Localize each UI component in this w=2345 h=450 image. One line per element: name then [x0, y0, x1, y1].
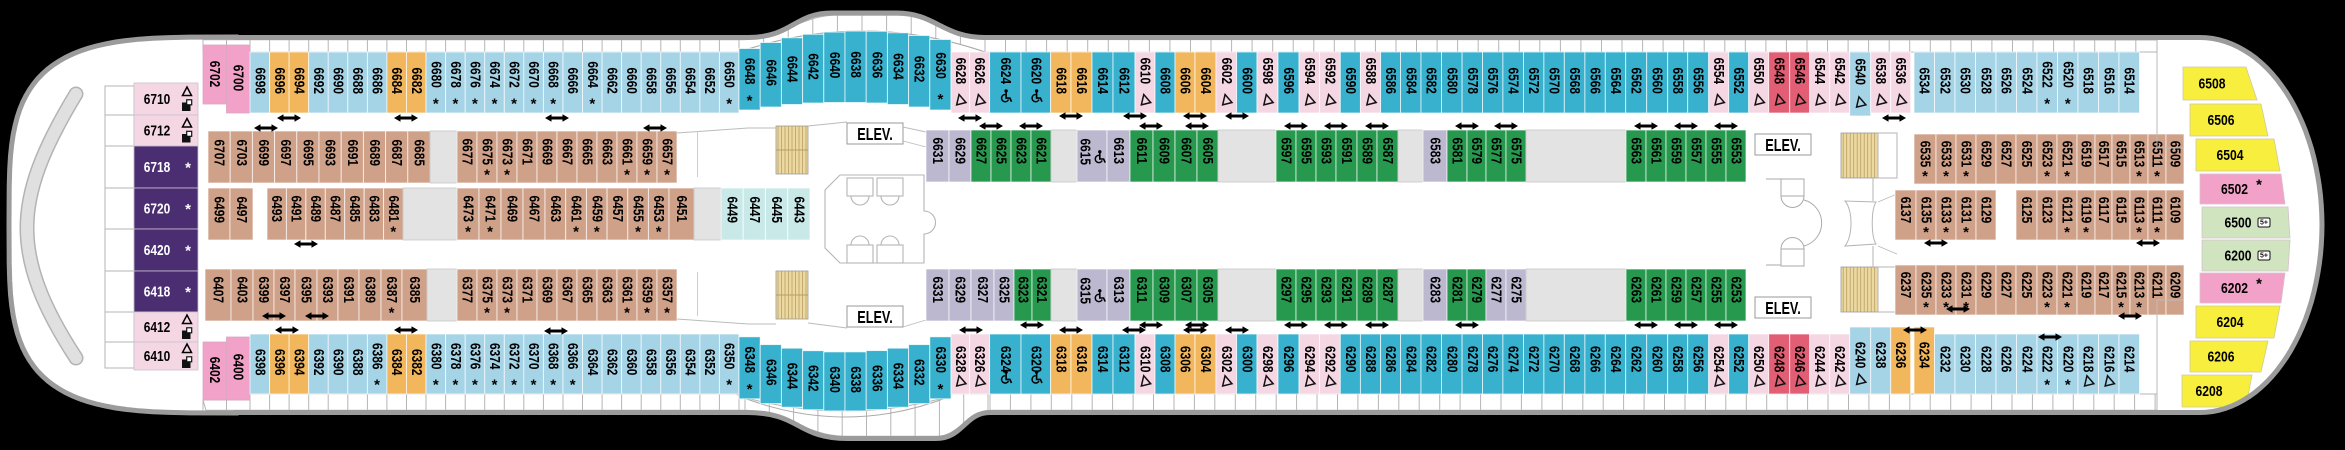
svg-text:6219: 6219 [2078, 272, 2095, 299]
svg-text:6578: 6578 [1464, 67, 1481, 94]
svg-text:*: * [492, 377, 498, 394]
svg-text:6654: 6654 [682, 67, 699, 94]
svg-text:6673: 6673 [499, 139, 516, 166]
svg-text:*: * [2044, 95, 2050, 112]
svg-text:6670: 6670 [525, 61, 542, 88]
svg-text:6364: 6364 [584, 349, 601, 376]
svg-text:6587: 6587 [1379, 138, 1396, 165]
svg-text:6561: 6561 [1648, 138, 1665, 165]
svg-text:6382: 6382 [408, 349, 425, 376]
svg-text:6306: 6306 [1177, 346, 1194, 373]
svg-text:6560: 6560 [1649, 67, 1666, 94]
svg-text:6595: 6595 [1298, 138, 1315, 165]
svg-text:6387: 6387 [383, 277, 400, 304]
svg-text:6113: 6113 [2131, 197, 2148, 224]
svg-text:6613: 6613 [1110, 138, 1127, 165]
svg-text:*: * [433, 377, 439, 394]
svg-text:6707: 6707 [211, 140, 228, 167]
svg-text:*: * [664, 167, 670, 184]
svg-text:6627: 6627 [973, 138, 990, 165]
svg-text:6579: 6579 [1468, 138, 1485, 165]
svg-text:6625: 6625 [993, 138, 1010, 165]
svg-text:6563: 6563 [1628, 138, 1645, 165]
svg-text:6540: 6540 [1852, 59, 1869, 86]
svg-text:6246: 6246 [1791, 346, 1808, 373]
svg-text:6214: 6214 [2121, 346, 2138, 373]
svg-text:6238: 6238 [1872, 342, 1889, 369]
svg-text:6354: 6354 [682, 349, 699, 376]
svg-text:6665: 6665 [579, 139, 596, 166]
svg-text:6284: 6284 [1402, 346, 1419, 373]
svg-text:6504: 6504 [2217, 147, 2244, 164]
svg-text:*: * [374, 377, 380, 394]
svg-text:6282: 6282 [1423, 346, 1440, 373]
svg-text:6631: 6631 [929, 138, 946, 165]
svg-text:*: * [492, 95, 498, 112]
svg-text:6307: 6307 [1178, 277, 1195, 304]
svg-text:6642: 6642 [805, 53, 822, 80]
svg-text:6527: 6527 [1998, 141, 2015, 168]
svg-text:6240: 6240 [1852, 342, 1869, 369]
svg-text:6552: 6552 [1730, 67, 1747, 94]
svg-text:*: * [624, 305, 630, 322]
svg-text:6420: 6420 [144, 242, 171, 259]
svg-text:6352: 6352 [701, 349, 718, 376]
svg-text:ELEV.: ELEV. [1765, 298, 1801, 318]
svg-text:6119: 6119 [2078, 197, 2095, 224]
svg-text:6443: 6443 [790, 197, 807, 224]
svg-text:6638: 6638 [847, 51, 864, 78]
svg-text:*: * [465, 224, 471, 241]
svg-text:*: * [2154, 168, 2160, 185]
svg-text:6658: 6658 [643, 67, 660, 94]
svg-text:6396: 6396 [271, 349, 288, 376]
svg-text:6514: 6514 [2121, 67, 2138, 94]
svg-text:6671: 6671 [519, 139, 536, 166]
svg-text:6523: 6523 [2039, 141, 2056, 168]
svg-text:*: * [726, 95, 732, 112]
svg-text:6558: 6558 [1669, 67, 1686, 94]
svg-text:6636: 6636 [868, 52, 885, 79]
svg-text:6520: 6520 [2059, 61, 2076, 88]
svg-text:6380: 6380 [427, 343, 444, 370]
svg-text:6235: 6235 [1918, 272, 1935, 299]
svg-text:6297: 6297 [1278, 277, 1295, 304]
svg-text:6718: 6718 [144, 159, 171, 176]
svg-text:6315: 6315 [1077, 278, 1094, 305]
svg-text:*: * [635, 224, 641, 241]
svg-text:6694: 6694 [290, 67, 307, 94]
svg-text:6611: 6611 [1133, 138, 1150, 165]
svg-text:6597: 6597 [1278, 138, 1295, 165]
svg-text:6253: 6253 [1728, 277, 1745, 304]
svg-text:6630: 6630 [932, 52, 949, 79]
svg-text:6710: 6710 [144, 91, 171, 108]
svg-text:*: * [2065, 377, 2071, 394]
svg-text:6615: 6615 [1077, 139, 1094, 166]
svg-text:6604: 6604 [1197, 67, 1214, 94]
svg-text:6680: 6680 [427, 61, 444, 88]
svg-text:6624: 6624 [997, 58, 1014, 85]
svg-text:6590: 6590 [1342, 67, 1359, 94]
svg-text:6712: 6712 [144, 123, 171, 140]
svg-text:6697: 6697 [277, 140, 294, 167]
svg-text:6499: 6499 [211, 197, 228, 224]
svg-text:6609: 6609 [1156, 138, 1173, 165]
svg-text:6675: 6675 [479, 139, 496, 166]
svg-text:*: * [2064, 224, 2070, 241]
svg-text:6508: 6508 [2199, 76, 2226, 93]
svg-text:6700: 6700 [230, 65, 247, 92]
svg-text:6586: 6586 [1382, 67, 1399, 94]
svg-text:*: * [1963, 168, 1969, 185]
svg-text:6358: 6358 [643, 349, 660, 376]
svg-text:6650: 6650 [721, 61, 738, 88]
svg-text:6367: 6367 [559, 277, 576, 304]
svg-text:6530: 6530 [1957, 67, 1974, 94]
svg-text:6664: 6664 [584, 61, 601, 88]
svg-text:6607: 6607 [1178, 138, 1195, 165]
svg-text:6491: 6491 [288, 196, 305, 223]
svg-text:6403: 6403 [234, 277, 251, 304]
svg-text:*: * [1943, 299, 1949, 316]
svg-text:6667: 6667 [559, 139, 576, 166]
svg-text:6652: 6652 [701, 67, 718, 94]
svg-text:*: * [452, 377, 458, 394]
svg-text:6283: 6283 [1427, 277, 1444, 304]
svg-text:*: * [433, 95, 439, 112]
svg-text:6294: 6294 [1301, 346, 1318, 373]
svg-text:6357: 6357 [659, 277, 676, 304]
svg-text:6226: 6226 [1998, 346, 2015, 373]
svg-text:6260: 6260 [1649, 346, 1666, 373]
svg-text:*: * [185, 201, 191, 218]
svg-text:6228: 6228 [1977, 346, 1994, 373]
svg-text:6115: 6115 [2113, 197, 2130, 224]
svg-text:6256: 6256 [1690, 346, 1707, 373]
svg-text:6356: 6356 [662, 349, 679, 376]
svg-text:6691: 6691 [344, 140, 361, 167]
svg-text:6325: 6325 [996, 277, 1013, 304]
svg-text:6695: 6695 [299, 140, 316, 167]
svg-text:6557: 6557 [1688, 138, 1705, 165]
svg-text:6330: 6330 [932, 347, 949, 374]
svg-text:6264: 6264 [1607, 346, 1624, 373]
svg-text:*: * [2044, 299, 2050, 316]
svg-text:6612: 6612 [1116, 67, 1133, 94]
svg-text:6220: 6220 [2059, 346, 2076, 373]
svg-text:6266: 6266 [1587, 346, 1604, 373]
svg-text:6581: 6581 [1449, 138, 1466, 165]
svg-text:6594: 6594 [1301, 58, 1318, 85]
svg-text:6559: 6559 [1668, 138, 1685, 165]
svg-text:6660: 6660 [623, 67, 640, 94]
svg-text:6620: 6620 [1027, 58, 1044, 85]
svg-text:6644: 6644 [784, 56, 801, 83]
svg-text:5+: 5+ [2260, 252, 2268, 259]
svg-text:6232: 6232 [1936, 346, 1953, 373]
svg-text:6447: 6447 [746, 197, 763, 224]
svg-text:6338: 6338 [847, 366, 864, 393]
svg-text:6370: 6370 [525, 343, 542, 370]
svg-text:6572: 6572 [1525, 67, 1542, 94]
svg-text:*: * [1923, 224, 1929, 241]
svg-text:6577: 6577 [1488, 138, 1505, 165]
svg-text:6277: 6277 [1488, 277, 1505, 304]
svg-text:*: * [484, 305, 490, 322]
svg-text:6366: 6366 [564, 343, 581, 370]
svg-text:6257: 6257 [1688, 277, 1705, 304]
svg-text:6445: 6445 [768, 197, 785, 224]
svg-text:6500: 6500 [2225, 215, 2252, 232]
svg-text:*: * [2154, 224, 2160, 241]
svg-text:6583: 6583 [1427, 138, 1444, 165]
svg-text:*: * [472, 95, 478, 112]
svg-text:6593: 6593 [1318, 138, 1335, 165]
svg-text:6323: 6323 [1015, 277, 1032, 304]
svg-text:6606: 6606 [1177, 67, 1194, 94]
svg-text:*: * [2064, 299, 2070, 316]
svg-text:6261: 6261 [1648, 277, 1665, 304]
svg-text:6321: 6321 [1033, 277, 1050, 304]
svg-text:6528: 6528 [1977, 67, 1994, 94]
svg-text:6467: 6467 [526, 196, 543, 223]
svg-text:6233: 6233 [1938, 272, 1955, 299]
svg-text:6272: 6272 [1525, 346, 1542, 373]
svg-text:6117: 6117 [2095, 197, 2112, 224]
svg-text:*: * [2083, 224, 2089, 241]
svg-text:6589: 6589 [1359, 138, 1376, 165]
svg-text:6588: 6588 [1362, 58, 1379, 85]
svg-text:*: * [487, 224, 493, 241]
svg-text:6410: 6410 [144, 348, 171, 365]
svg-text:6532: 6532 [1936, 67, 1953, 94]
svg-text:6372: 6372 [506, 343, 523, 370]
svg-text:6397: 6397 [276, 277, 293, 304]
svg-text:6362: 6362 [603, 349, 620, 376]
svg-text:6483: 6483 [365, 196, 382, 223]
svg-text:6696: 6696 [271, 67, 288, 94]
svg-text:6213: 6213 [2131, 272, 2148, 299]
svg-text:6489: 6489 [307, 196, 324, 223]
svg-text:6209: 6209 [2167, 272, 2184, 299]
svg-text:6400: 6400 [230, 354, 247, 381]
svg-text:6576: 6576 [1484, 67, 1501, 94]
svg-text:6461: 6461 [568, 196, 585, 223]
svg-text:6600: 6600 [1238, 67, 1255, 94]
svg-text:6314: 6314 [1094, 346, 1111, 373]
svg-text:6591: 6591 [1338, 138, 1355, 165]
svg-text:6531: 6531 [1958, 141, 1975, 168]
svg-text:6517: 6517 [2095, 141, 2112, 168]
svg-text:6602: 6602 [1218, 58, 1235, 85]
svg-text:6391: 6391 [340, 277, 357, 304]
svg-text:6678: 6678 [447, 61, 464, 88]
svg-text:6377: 6377 [459, 277, 476, 304]
svg-text:6208: 6208 [2196, 383, 2223, 400]
svg-text:6250: 6250 [1750, 346, 1767, 373]
svg-text:6623: 6623 [1013, 138, 1030, 165]
svg-text:6502: 6502 [2221, 181, 2248, 198]
svg-text:6481: 6481 [385, 196, 402, 223]
svg-text:6274: 6274 [1505, 346, 1522, 373]
svg-text:6418: 6418 [144, 284, 171, 301]
svg-text:6469: 6469 [504, 196, 521, 223]
svg-text:6123: 6123 [2039, 197, 2056, 224]
svg-text:6304: 6304 [1197, 346, 1214, 373]
svg-text:6293: 6293 [1318, 277, 1335, 304]
svg-text:*: * [624, 167, 630, 184]
svg-text:6350: 6350 [721, 343, 738, 370]
svg-text:6263: 6263 [1628, 277, 1645, 304]
svg-text:6536: 6536 [1892, 58, 1909, 85]
svg-text:6463: 6463 [547, 196, 564, 223]
svg-text:6218: 6218 [2080, 346, 2097, 373]
svg-text:6312: 6312 [1116, 346, 1133, 373]
svg-text:6519: 6519 [2078, 141, 2095, 168]
svg-text:6646: 6646 [762, 60, 779, 87]
svg-text:6668: 6668 [545, 61, 562, 88]
svg-text:6659: 6659 [639, 139, 656, 166]
svg-text:*: * [2136, 168, 2142, 185]
svg-text:5+: 5+ [2260, 219, 2268, 226]
svg-text:6254: 6254 [1710, 346, 1727, 373]
svg-text:6262: 6262 [1628, 346, 1645, 373]
svg-text:6666: 6666 [564, 67, 581, 94]
svg-text:*: * [389, 305, 395, 322]
svg-text:6258: 6258 [1669, 346, 1686, 373]
svg-text:6302: 6302 [1218, 346, 1235, 373]
svg-text:6125: 6125 [2018, 197, 2035, 224]
svg-text:6485: 6485 [346, 196, 363, 223]
svg-text:6278: 6278 [1464, 346, 1481, 373]
svg-text:6281: 6281 [1449, 277, 1466, 304]
svg-text:6384: 6384 [388, 349, 405, 376]
svg-text:6542: 6542 [1831, 58, 1848, 85]
svg-text:6699: 6699 [255, 140, 272, 167]
svg-text:*: * [185, 284, 191, 301]
svg-text:6473: 6473 [460, 196, 477, 223]
svg-text:6509: 6509 [2167, 141, 2184, 168]
svg-text:*: * [644, 305, 650, 322]
svg-text:6248: 6248 [1771, 346, 1788, 373]
svg-text:6692: 6692 [310, 67, 327, 94]
svg-text:6244: 6244 [1811, 346, 1828, 373]
svg-text:ELEV.: ELEV. [857, 307, 893, 327]
svg-text:6554: 6554 [1710, 58, 1727, 85]
svg-text:6596: 6596 [1280, 67, 1297, 94]
svg-text:6202: 6202 [2221, 280, 2248, 297]
svg-text:6546: 6546 [1791, 58, 1808, 85]
svg-text:6487: 6487 [327, 196, 344, 223]
svg-text:6133: 6133 [1938, 197, 1955, 224]
svg-text:6369: 6369 [539, 277, 556, 304]
svg-text:6698: 6698 [251, 67, 268, 94]
svg-text:6224: 6224 [2018, 346, 2035, 373]
svg-text:6242: 6242 [1831, 346, 1848, 373]
svg-text:*: * [2256, 177, 2262, 194]
svg-text:6252: 6252 [1730, 346, 1747, 373]
svg-text:*: * [937, 381, 943, 398]
svg-text:6451: 6451 [673, 196, 690, 223]
svg-text:6515: 6515 [2113, 141, 2130, 168]
svg-text:6386: 6386 [369, 343, 386, 370]
svg-text:6459: 6459 [588, 196, 605, 223]
svg-text:6223: 6223 [2039, 272, 2056, 299]
svg-text:6555: 6555 [1708, 138, 1725, 165]
svg-text:6669: 6669 [539, 139, 556, 166]
svg-text:6574: 6574 [1505, 67, 1522, 94]
svg-text:6216: 6216 [2100, 346, 2117, 373]
svg-text:*: * [550, 377, 556, 394]
svg-text:*: * [570, 377, 576, 394]
svg-text:*: * [2256, 276, 2262, 293]
svg-text:6533: 6533 [1938, 141, 1955, 168]
svg-text:6395: 6395 [298, 277, 315, 304]
svg-text:6344: 6344 [784, 363, 801, 390]
svg-text:6402: 6402 [206, 357, 223, 384]
svg-text:6626: 6626 [971, 58, 988, 85]
svg-text:6222: 6222 [2039, 346, 2056, 373]
svg-text:6506: 6506 [2208, 112, 2235, 129]
svg-text:6566: 6566 [1587, 67, 1604, 94]
svg-text:6628: 6628 [952, 58, 969, 85]
svg-text:6290: 6290 [1342, 346, 1359, 373]
svg-text:6308: 6308 [1157, 346, 1174, 373]
svg-text:6453: 6453 [650, 196, 667, 223]
svg-text:*: * [589, 95, 595, 112]
svg-text:6570: 6570 [1546, 67, 1563, 94]
svg-text:6318: 6318 [1052, 346, 1069, 373]
svg-text:6663: 6663 [599, 139, 616, 166]
svg-text:6324: 6324 [997, 346, 1014, 373]
svg-text:6580: 6580 [1443, 67, 1460, 94]
svg-text:*: * [531, 95, 537, 112]
svg-text:6412: 6412 [144, 319, 171, 336]
svg-text:6385: 6385 [406, 277, 423, 304]
svg-text:6618: 6618 [1052, 67, 1069, 94]
svg-text:6605: 6605 [1199, 138, 1216, 165]
svg-text:6305: 6305 [1199, 277, 1216, 304]
svg-text:6608: 6608 [1157, 67, 1174, 94]
svg-text:6296: 6296 [1280, 346, 1297, 373]
svg-text:6399: 6399 [255, 277, 272, 304]
svg-text:6661: 6661 [619, 139, 636, 166]
svg-text:6298: 6298 [1259, 346, 1276, 373]
svg-text:6568: 6568 [1566, 67, 1583, 94]
svg-text:6685: 6685 [410, 140, 427, 167]
svg-text:6562: 6562 [1628, 67, 1645, 94]
svg-text:6286: 6286 [1382, 346, 1399, 373]
svg-text:6361: 6361 [619, 277, 636, 304]
svg-text:6407: 6407 [210, 277, 227, 304]
svg-text:*: * [484, 167, 490, 184]
svg-text:6368: 6368 [545, 343, 562, 370]
svg-text:*: * [2065, 95, 2071, 112]
svg-text:6672: 6672 [506, 61, 523, 88]
svg-text:6206: 6206 [2208, 349, 2235, 366]
svg-text:6340: 6340 [826, 366, 843, 393]
svg-text:6584: 6584 [1402, 67, 1419, 94]
svg-text:6287: 6287 [1379, 277, 1396, 304]
svg-text:6634: 6634 [890, 53, 907, 80]
svg-text:*: * [594, 224, 600, 241]
svg-text:6217: 6217 [2095, 272, 2112, 299]
svg-text:6329: 6329 [952, 277, 969, 304]
svg-text:6309: 6309 [1156, 277, 1173, 304]
svg-text:6221: 6221 [2059, 272, 2076, 299]
svg-text:*: * [452, 95, 458, 112]
